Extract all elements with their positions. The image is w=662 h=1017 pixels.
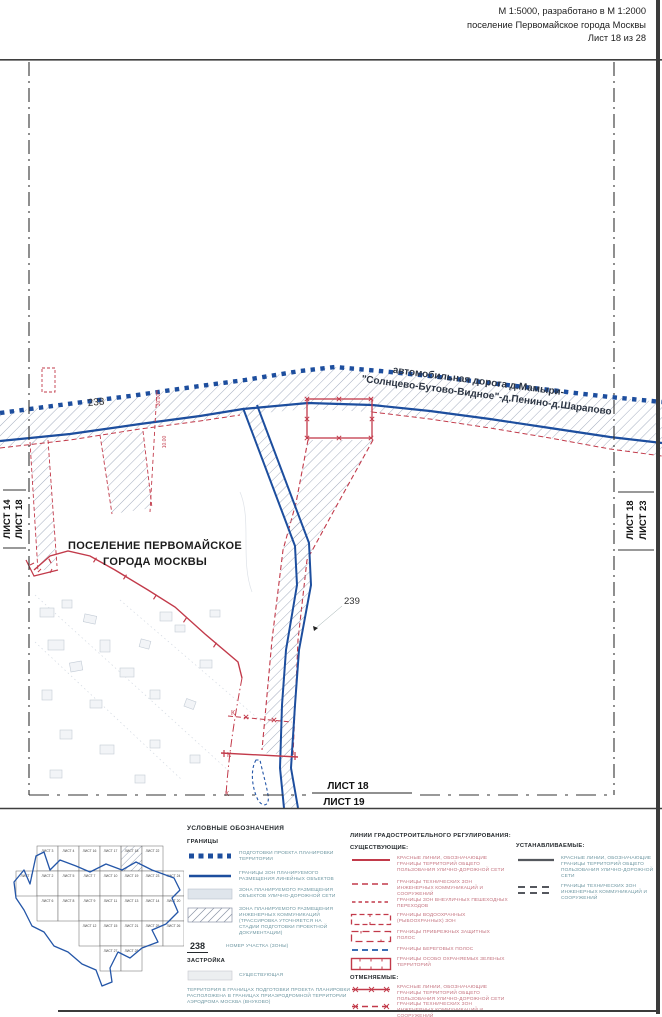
legend-item-shoreline-strips: ГРАНИЦЫ БЕРЕГОВЫХ ПОЛОС — [350, 946, 510, 954]
swatch-dark-dashed-line — [516, 884, 556, 896]
legend-item-road-network-zone: ЗОНА ПЛАНИРУЕМОГО РАЗМЕЩЕНИЯ ОБЪЕКТОВ УЛ… — [187, 888, 345, 900]
legend-item-water-protection: ГРАНИЦЫ ВОДООХРАННЫХ (РЫБООХРАННЫХ) ЗОН — [350, 913, 510, 926]
legend-label: ГРАНИЦЫ ЗОН ПЛАНИРУЕМОГО РАЗМЕЩЕНИЯ ЛИНЕ… — [239, 871, 343, 883]
legend-cancelled-section: ОТМЕНЯЕМЫЕ: — [350, 975, 399, 981]
legend-item-tech-zones-established: ГРАНИЦЫ ТЕХНИЧЕСКИХ ЗОН ИНЖЕНЕРНЫХ КОММУ… — [516, 884, 658, 902]
minimap-cell-label: ЛИСТ 22 — [146, 849, 160, 853]
zone-number-symbol: 238 — [187, 941, 208, 953]
minimap-cells: ЛИСТ 3ЛИСТ 4ЛИСТ 16ЛИСТ 17ЛИСТ 18ЛИСТ 22… — [16, 846, 184, 971]
minimap-cell-label: ЛИСТ 18 — [125, 849, 139, 853]
plan-sheet-page: М 1:5000, разработано в М 1:2000 поселен… — [0, 0, 662, 1017]
legend-territory-note: ТЕРРИТОРИЯ В ГРАНИЦАХ ПОДГОТОВКИ ПРОЕКТА… — [187, 988, 355, 1006]
dimension-label-a: 30.00 — [156, 394, 162, 407]
edge-label-left-inner: ЛИСТ 18 — [14, 499, 25, 538]
legend-established-section: УСТАНАВЛИВАЕМЫЕ: — [516, 843, 585, 849]
minimap-cell-label: ЛИСТ 21 — [125, 924, 139, 928]
swatch-red-dashed-rect — [350, 913, 392, 926]
swatch-red-rect-ticks — [350, 957, 392, 971]
swatch-blue-dotted-line — [187, 851, 233, 861]
minimap-cell-label: ЛИСТ 26 — [167, 924, 181, 928]
legend-title: УСЛОВНЫЕ ОБОЗНАЧЕНИЯ — [187, 825, 284, 832]
parcel-238-label: 238 — [87, 397, 105, 409]
swatch-road-zone-box — [187, 888, 233, 900]
swatch-red-line-x-marks — [350, 985, 392, 994]
legend-label: ПОДГОТОВКИ ПРОЕКТА ПЛАНИРОВКИ ТЕРРИТОРИИ — [239, 851, 343, 863]
minimap-cell-label: ЛИСТ 4 — [63, 849, 75, 853]
minimap-cell-label: ЛИСТ 23 — [146, 874, 160, 878]
legend-label: ГРАНИЦЫ ЗОН ВНЕУЛИЧНЫХ ПЕШЕХОДНЫХ ПЕРЕХО… — [397, 898, 509, 910]
swatch-red-short-dash-line — [350, 898, 392, 906]
legend-label: ЗОНА ПЛАНИРУЕМОГО РАЗМЕЩЕНИЯ ИНЖЕНЕРНЫХ … — [239, 907, 343, 937]
scan-edge-right — [656, 0, 660, 1014]
legend-item-tech-zones-existing: ГРАНИЦЫ ТЕХНИЧЕСКИХ ЗОН ИНЖЕНЕРНЫХ КОММУ… — [350, 880, 510, 898]
swatch-hatched-box — [187, 907, 233, 923]
legend-label: ГРАНИЦЫ ТЕХНИЧЕСКИХ ЗОН ИНЖЕНЕРНЫХ КОММУ… — [397, 880, 509, 898]
minimap-cell-label: ЛИСТ 14 — [146, 899, 160, 903]
parcel-239-label: 239 — [344, 596, 360, 607]
minimap-cell-label: ЛИСТ 6 — [42, 899, 54, 903]
legend-item-existing-development: СУЩЕСТВУЮЩАЯ — [187, 970, 345, 981]
legend-label: ГРАНИЦЫ ВОДООХРАННЫХ (РЫБООХРАННЫХ) ЗОН — [397, 913, 509, 925]
edge-label-right-inner: ЛИСТ 18 — [625, 500, 636, 539]
edge-label-left-outer: ЛИСТ 14 — [2, 499, 13, 539]
legend-label: ГРАНИЦЫ БЕРЕГОВЫХ ПОЛОС — [397, 947, 509, 953]
legend-label: ГРАНИЦЫ ПРИБРЕЖНЫХ ЗАЩИТНЫХ ПОЛОС — [397, 930, 509, 942]
legend-item-pedestrian-crossings: ГРАНИЦЫ ЗОН ВНЕУЛИЧНЫХ ПЕШЕХОДНЫХ ПЕРЕХО… — [350, 898, 510, 910]
minimap-cell-label: ЛИСТ 27 — [104, 949, 118, 953]
scan-edge-bottom — [58, 1010, 660, 1012]
legend-item-red-lines-established: КРАСНЫЕ ЛИНИИ, ОБОЗНАЧАЮЩИЕ ГРАНИЦЫ ТЕРР… — [516, 856, 658, 880]
minimap-cell-label: ЛИСТ 12 — [83, 924, 97, 928]
swatch-red-dashed-line — [350, 880, 392, 888]
legend-item-shore-protection: ГРАНИЦЫ ПРИБРЕЖНЫХ ЗАЩИТНЫХ ПОЛОС — [350, 930, 510, 943]
edge-label-right-outer: ЛИСТ 23 — [638, 500, 649, 539]
legend-label: НОМЕР УЧАСТКА (ЗОНЫ) — [226, 944, 326, 950]
sheet-index-minimap: ЛИСТ 3ЛИСТ 4ЛИСТ 16ЛИСТ 17ЛИСТ 18ЛИСТ 22… — [6, 840, 184, 1008]
legend-item-utility-zone: ЗОНА ПЛАНИРУЕМОГО РАЗМЕЩЕНИЯ ИНЖЕНЕРНЫХ … — [187, 907, 345, 937]
swatch-red-dashed-rect-2 — [350, 930, 392, 943]
minimap-cell-label: ЛИСТ 13 — [125, 899, 139, 903]
legend-item-red-lines-cancelled: КРАСНЫЕ ЛИНИИ, ОБОЗНАЧАЮЩИЕ ГРАНИЦЫ ТЕРР… — [350, 985, 510, 1003]
legend-label: ЗОНА ПЛАНИРУЕМОГО РАЗМЕЩЕНИЯ ОБЪЕКТОВ УЛ… — [239, 888, 343, 900]
legend-borders-section: ГРАНИЦЫ — [187, 839, 218, 845]
mid-utility-strip — [100, 431, 152, 514]
legend-development-section: ЗАСТРОЙКА — [187, 958, 225, 964]
minimap-cell-label: ЛИСТ 8 — [63, 899, 75, 903]
legend-label: КРАСНЫЕ ЛИНИИ, ОБОЗНАЧАЮЩИЕ ГРАНИЦЫ ТЕРР… — [397, 856, 509, 874]
swatch-red-solid-line — [350, 856, 392, 864]
swatch-existing-development-box — [187, 970, 233, 981]
settlement-note: поселение Первомайское города Москвы — [467, 19, 646, 33]
swatch-dark-solid-line — [516, 856, 556, 864]
edge-label-bottom-top: ЛИСТ 18 — [327, 781, 369, 792]
sheet-number-note: Лист 18 из 28 — [467, 32, 646, 46]
minimap-cell-label: ЛИСТ 17 — [104, 849, 118, 853]
minimap-cell-label: ЛИСТ 19 — [125, 874, 139, 878]
minimap-cell-label: ЛИСТ 5 — [63, 874, 75, 878]
road-zone-hatch-outside — [614, 398, 662, 456]
legend-existing-section: СУЩЕСТВУЮЩИЕ: — [350, 845, 408, 851]
dimension-label-b: 10.00 — [162, 436, 168, 449]
minimap-cell-label: ЛИСТ 2 — [42, 874, 54, 878]
minimap-cell-label: ЛИСТ 10 — [104, 874, 118, 878]
legend-item-project-boundary: ПОДГОТОВКИ ПРОЕКТА ПЛАНИРОВКИ ТЕРРИТОРИИ — [187, 851, 345, 863]
legend-item-linear-zone-boundary: ГРАНИЦЫ ЗОН ПЛАНИРУЕМОГО РАЗМЕЩЕНИЯ ЛИНЕ… — [187, 871, 345, 883]
legend-item-zone-number: 238 НОМЕР УЧАСТКА (ЗОНЫ) — [187, 941, 345, 953]
edge-label-bottom-bottom: ЛИСТ 19 — [323, 797, 365, 808]
swatch-blue-dashed-line — [350, 946, 392, 954]
settlement-name-line2: ГОРОДА МОСКВЫ — [103, 556, 207, 568]
minimap-cell-label: ЛИСТ 9 — [84, 899, 96, 903]
main-map: 238 239 автомобильная дорога д.Мамыри- "… — [0, 59, 662, 811]
legend-label: КРАСНЫЕ ЛИНИИ, ОБОЗНАЧАЮЩИЕ ГРАНИЦЫ ТЕРР… — [561, 856, 657, 880]
minimap-cell-label: ЛИСТ 15 — [104, 924, 118, 928]
title-block: М 1:5000, разработано в М 1:2000 поселен… — [467, 5, 646, 46]
shore-outline — [252, 760, 268, 805]
minimap-cell-label: ЛИСТ 11 — [104, 899, 118, 903]
existing-development-texture — [35, 492, 262, 783]
legend-item-protected-green: ГРАНИЦЫ ОСОБО ОХРАНЯЕМЫХ ЗЕЛЕНЫХ ТЕРРИТО… — [350, 957, 510, 971]
scale-note: М 1:5000, разработано в М 1:2000 — [467, 5, 646, 19]
legend-label: ГРАНИЦЫ ТЕХНИЧЕСКИХ ЗОН ИНЖЕНЕРНЫХ КОММУ… — [561, 884, 657, 902]
legend-item-red-lines-existing: КРАСНЫЕ ЛИНИИ, ОБОЗНАЧАЮЩИЕ ГРАНИЦЫ ТЕРР… — [350, 856, 510, 874]
legend-lines-title: ЛИНИИ ГРАДОСТРОИТЕЛЬНОГО РЕГУЛИРОВАНИЯ: — [350, 833, 515, 839]
swatch-blue-solid-line — [187, 871, 233, 881]
legend-label: СУЩЕСТВУЮЩАЯ — [239, 973, 343, 979]
legend-label: ГРАНИЦЫ ОСОБО ОХРАНЯЕМЫХ ЗЕЛЕНЫХ ТЕРРИТО… — [397, 957, 509, 969]
minimap-cell-label: ЛИСТ 7 — [84, 874, 96, 878]
settlement-name-line1: ПОСЕЛЕНИЕ ПЕРВОМАЙСКОЕ — [68, 539, 242, 552]
legend-label: КРАСНЫЕ ЛИНИИ, ОБОЗНАЧАЮЩИЕ ГРАНИЦЫ ТЕРР… — [397, 985, 509, 1003]
minimap-cell-label: ЛИСТ 16 — [83, 849, 97, 853]
